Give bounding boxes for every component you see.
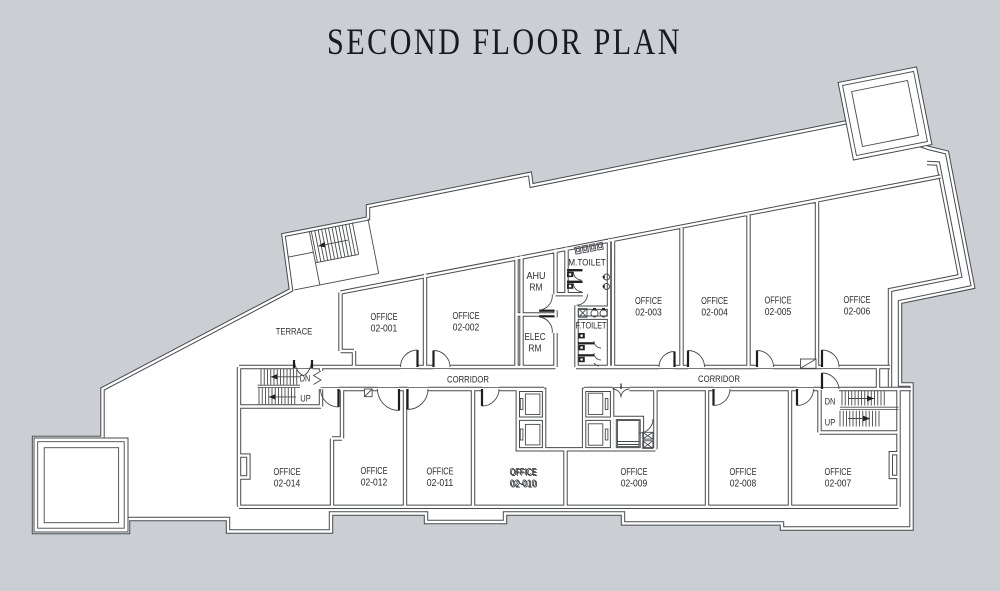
- svg-text:DN: DN: [300, 374, 311, 384]
- svg-text:02-010: 02-010: [511, 479, 538, 490]
- svg-text:CORRIDOR: CORRIDOR: [698, 374, 740, 385]
- svg-text:UP: UP: [825, 418, 836, 428]
- svg-text:RM: RM: [530, 283, 543, 294]
- svg-text:M.TOILET: M.TOILET: [568, 258, 606, 269]
- svg-text:OFFICE: OFFICE: [274, 467, 301, 478]
- svg-text:DN: DN: [825, 397, 836, 407]
- svg-text:SECOND FLOOR PLAN: SECOND FLOOR PLAN: [327, 22, 682, 63]
- svg-text:OFFICE: OFFICE: [453, 311, 480, 322]
- svg-text:AHU: AHU: [527, 271, 546, 282]
- svg-text:OFFICE: OFFICE: [427, 467, 454, 478]
- svg-text:02-003: 02-003: [635, 308, 662, 319]
- svg-text:OFFICE: OFFICE: [635, 296, 662, 307]
- svg-text:OFFICE: OFFICE: [844, 295, 871, 306]
- svg-text:F.TOILET: F.TOILET: [576, 321, 607, 332]
- svg-text:UP: UP: [300, 394, 311, 404]
- svg-text:OFFICE: OFFICE: [825, 467, 852, 478]
- svg-text:OFFICE: OFFICE: [701, 296, 728, 307]
- svg-text:02-007: 02-007: [825, 479, 852, 490]
- svg-text:RM: RM: [529, 344, 542, 355]
- svg-text:OFFICE: OFFICE: [765, 296, 792, 307]
- svg-text:02-002: 02-002: [453, 323, 480, 334]
- svg-text:02-011: 02-011: [427, 478, 454, 489]
- svg-text:02-005: 02-005: [765, 307, 792, 318]
- svg-text:TERRACE: TERRACE: [276, 327, 313, 338]
- svg-text:02-008: 02-008: [730, 479, 757, 490]
- svg-text:02-001: 02-001: [371, 324, 398, 335]
- svg-text:OFFICE: OFFICE: [730, 467, 757, 478]
- svg-text:OFFICE: OFFICE: [371, 312, 398, 323]
- svg-text:02-012: 02-012: [361, 478, 388, 489]
- svg-text:OFFICE: OFFICE: [621, 467, 648, 478]
- svg-text:02-014: 02-014: [274, 479, 301, 490]
- svg-text:OFFICE: OFFICE: [361, 466, 388, 477]
- svg-text:02-006: 02-006: [844, 307, 871, 318]
- svg-text:02-004: 02-004: [701, 308, 728, 319]
- svg-text:OFFICE: OFFICE: [511, 468, 538, 479]
- svg-text:ELEC: ELEC: [525, 332, 546, 343]
- svg-text:02-009: 02-009: [621, 479, 648, 490]
- svg-text:CORRIDOR: CORRIDOR: [447, 375, 489, 386]
